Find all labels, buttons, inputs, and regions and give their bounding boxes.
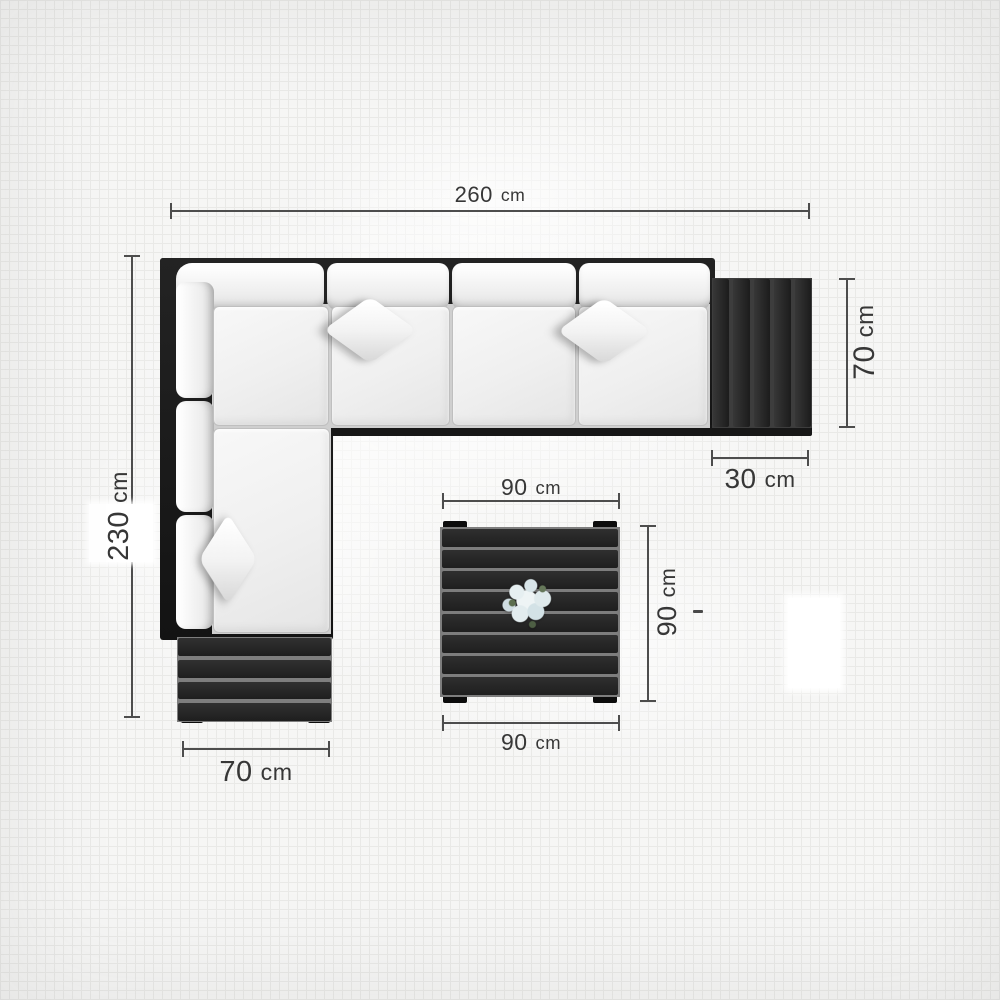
dimension-label-side-table-depth: 70 cm (848, 272, 878, 412)
dimension-unit: cm (501, 185, 525, 206)
side-table-slat (774, 279, 790, 427)
dimension-value: 230 (103, 511, 136, 561)
dimension-label-coffee-table-depth: 90 cm (652, 532, 682, 672)
seat-cushion-3 (452, 306, 576, 426)
dimension-line-bench-width (182, 748, 330, 750)
ottoman-bench (177, 637, 332, 722)
back-cushion-2 (327, 263, 449, 310)
dimension-value: 70 (219, 756, 252, 789)
dimension-unit: cm (536, 477, 562, 499)
dimension-line-side-table-width (711, 457, 809, 459)
back-cushion-3 (452, 263, 576, 310)
side-table-slat (795, 279, 811, 427)
coffee-table-slat (442, 635, 618, 653)
flower-bouquet (500, 577, 556, 631)
dimension-line-coffee-table-depth (647, 525, 649, 702)
bench-slat (178, 703, 331, 721)
dimension-unit: cm (655, 568, 681, 598)
dimension-value: 90 (501, 474, 528, 501)
dimension-label-coffee-table-width-bottom: 90 cm (442, 729, 620, 756)
dimension-label-coffee-table-width-top: 90 cm (442, 474, 620, 501)
side-table-slat (713, 279, 729, 427)
dimension-value: 90 (501, 729, 528, 756)
side-table-slat (733, 279, 749, 427)
dimension-unit: cm (106, 471, 133, 503)
coffee-table-slat (442, 529, 618, 547)
dimension-unit: cm (765, 467, 796, 493)
dimension-value: 70 (848, 345, 882, 379)
coffee-table-slat (442, 656, 618, 674)
dimension-line-sofa-width (170, 210, 810, 212)
dimension-label-bench-width: 70 cm (172, 756, 340, 789)
dimension-line-coffee-table-width-bottom (442, 722, 620, 724)
dimension-unit: cm (261, 759, 293, 786)
dimension-diagram: 260 cm 230 cm 70 cm 30 cm 70 cm 90 cm 90… (0, 0, 1000, 1000)
coffee-table-slat (442, 677, 618, 695)
bench-slat (178, 660, 331, 678)
side-table-slat (754, 279, 770, 427)
coffee-table-slat (442, 550, 618, 568)
dimension-value: 30 (724, 463, 756, 495)
side-table (712, 278, 812, 428)
seat-cushion-corner (213, 306, 329, 426)
dimension-label-sofa-depth: 230 cm (103, 446, 133, 586)
dimension-label-side-table-width: 30 cm (690, 463, 830, 495)
dash-artifact (693, 610, 703, 613)
dimension-unit: cm (536, 732, 562, 754)
dimension-label-sofa-width: 260 cm (170, 182, 810, 208)
back-cushion-left-2 (176, 401, 214, 512)
white-patch-artifact (788, 598, 840, 688)
dimension-value: 90 (652, 605, 683, 636)
bench-slat (178, 682, 331, 700)
dimension-value: 260 (455, 182, 493, 208)
back-cushion-left-1 (176, 282, 214, 398)
bench-slat (178, 638, 331, 656)
dimension-unit: cm (852, 304, 880, 337)
